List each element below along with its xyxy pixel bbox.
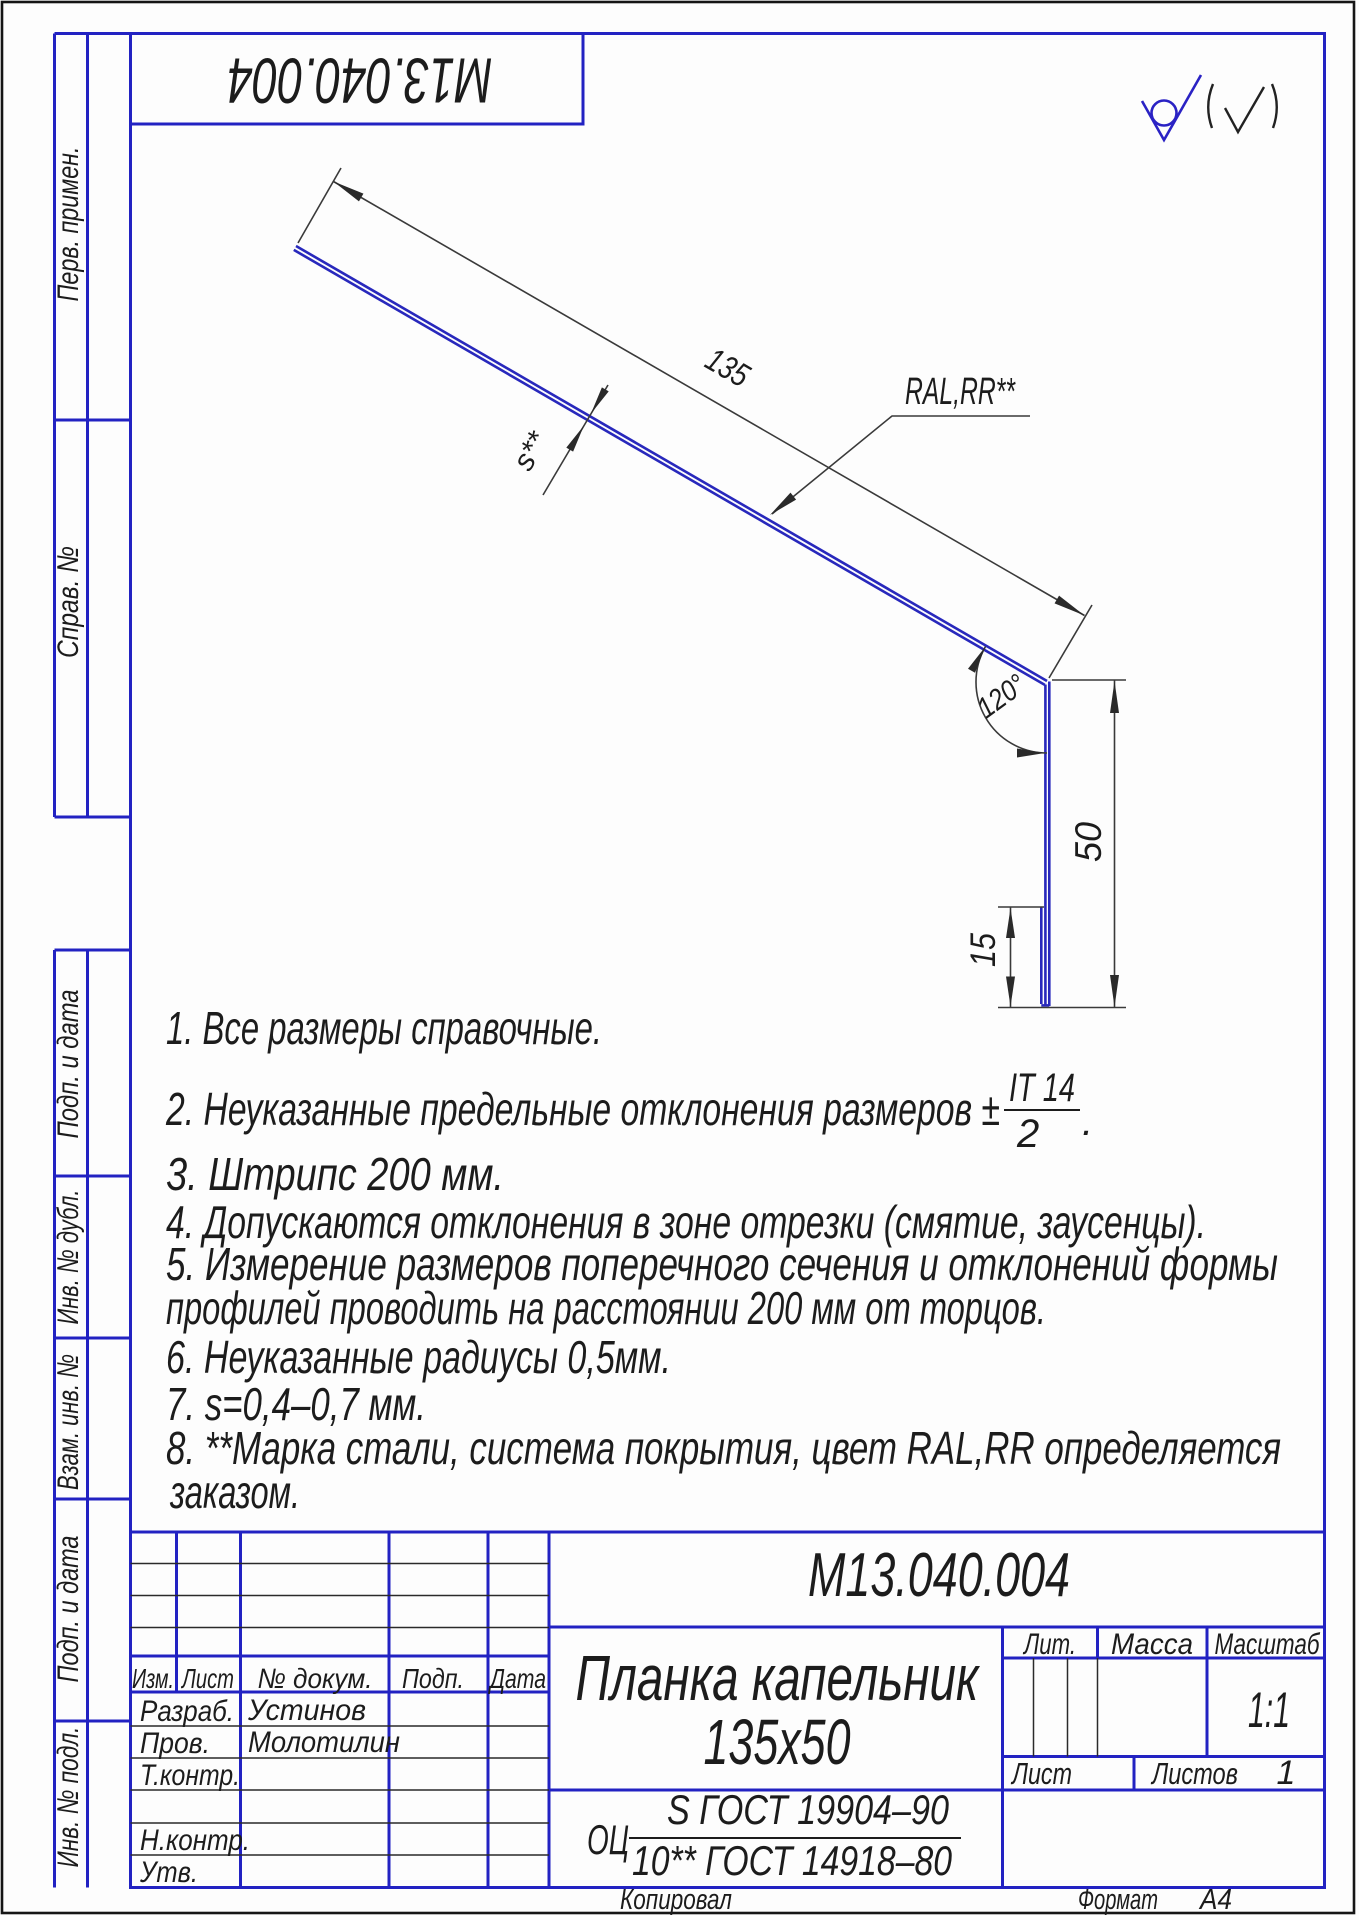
svg-text:ОЦ: ОЦ xyxy=(587,1816,629,1863)
svg-text:1: 1 xyxy=(1277,1754,1296,1792)
svg-text:Масса: Масса xyxy=(1111,1628,1193,1661)
svg-text:Подп. и дата: Подп. и дата xyxy=(52,1536,85,1683)
svg-text:Листов: Листов xyxy=(1150,1756,1238,1791)
svg-text:Инв. № подл.: Инв. № подл. xyxy=(52,1727,85,1868)
svg-text:заказом.: заказом. xyxy=(169,1466,300,1518)
svg-text:Н.контр.: Н.контр. xyxy=(140,1824,250,1857)
svg-text:М13.040.004: М13.040.004 xyxy=(228,45,493,117)
svg-text:2. Неуказанные предельные отк: 2. Неуказанные предельные отклонения раз… xyxy=(165,1083,1000,1135)
svg-text:3. Штрипс 200 мм.: 3. Штрипс 200 мм. xyxy=(166,1148,504,1200)
svg-text:IT 14: IT 14 xyxy=(1009,1066,1075,1110)
svg-text:Формат: Формат xyxy=(1078,1884,1158,1916)
svg-text:Лит.: Лит. xyxy=(1023,1628,1076,1661)
svg-text:№ докум.: № докум. xyxy=(258,1663,373,1694)
svg-text:10** ГОСТ 14918–80: 10** ГОСТ 14918–80 xyxy=(632,1837,953,1884)
svg-text:Лист: Лист xyxy=(1010,1756,1072,1791)
svg-text:Подп.: Подп. xyxy=(402,1663,464,1694)
svg-text:50: 50 xyxy=(1068,822,1109,862)
svg-text:Молотилин: Молотилин xyxy=(248,1726,400,1759)
svg-text:Изм.: Изм. xyxy=(132,1663,174,1694)
svg-text:8. **Марка стали, система п: 8. **Марка стали, система покрытия, цвет… xyxy=(166,1422,1281,1474)
svg-text:1:1: 1:1 xyxy=(1248,1682,1290,1738)
svg-text:Дата: Дата xyxy=(488,1663,546,1694)
svg-text:6. Неуказанные радиусы 0,5мм: 6. Неуказанные радиусы 0,5мм. xyxy=(166,1331,671,1383)
svg-text:Перв. примен.: Перв. примен. xyxy=(52,147,85,302)
svg-text:Инв. № дубл.: Инв. № дубл. xyxy=(52,1190,85,1325)
svg-text:А4: А4 xyxy=(1198,1884,1232,1916)
svg-text:2: 2 xyxy=(1016,1112,1039,1156)
svg-text:Справ. №: Справ. № xyxy=(52,546,85,658)
svg-text:Копировал: Копировал xyxy=(620,1884,732,1916)
svg-text:Устинов: Устинов xyxy=(247,1694,366,1727)
svg-text:Взам. инв. №: Взам. инв. № xyxy=(52,1354,85,1490)
svg-text:RAL,RR**: RAL,RR** xyxy=(905,371,1016,413)
svg-text:1. Все размеры справочные.: 1. Все размеры справочные. xyxy=(166,1002,602,1054)
svg-text:Т.контр.: Т.контр. xyxy=(140,1759,240,1792)
svg-text:Разраб.: Разраб. xyxy=(140,1695,234,1728)
svg-text:Утв.: Утв. xyxy=(139,1856,198,1889)
svg-text:.: . xyxy=(1082,1100,1093,1144)
svg-text:135х50: 135х50 xyxy=(704,1706,851,1778)
svg-text:Масштаб: Масштаб xyxy=(1215,1628,1321,1661)
svg-text:М13.040.004: М13.040.004 xyxy=(808,1541,1070,1610)
svg-text:Пров.: Пров. xyxy=(140,1727,210,1760)
svg-text:Лист: Лист xyxy=(181,1663,234,1694)
svg-text:Планка капельник: Планка капельник xyxy=(576,1642,981,1714)
svg-text:профилей проводить на расстоян: профилей проводить на расстоянии 200 мм … xyxy=(166,1282,1046,1334)
svg-text:Подп. и дата: Подп. и дата xyxy=(52,990,85,1139)
svg-text:15: 15 xyxy=(964,933,1003,967)
svg-text:S ГОСТ 19904–90: S ГОСТ 19904–90 xyxy=(667,1786,950,1833)
